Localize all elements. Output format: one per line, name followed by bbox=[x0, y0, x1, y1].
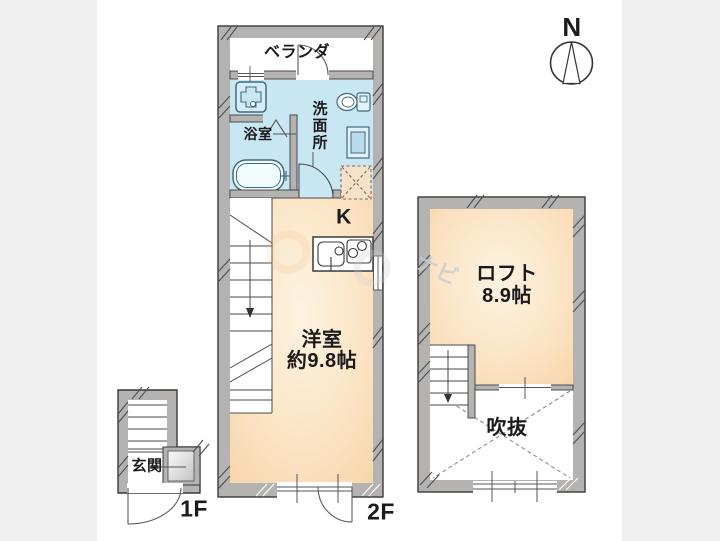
entrance-label: 玄関 bbox=[131, 459, 162, 474]
floor-2f-label: 2F bbox=[367, 501, 395, 524]
kitchen-label: K bbox=[336, 207, 352, 228]
staircase-1f bbox=[230, 198, 272, 413]
floorplan-graphics bbox=[0, 0, 720, 541]
bathtub-icon bbox=[233, 160, 290, 191]
entrance-door-arc bbox=[127, 483, 183, 524]
vanity-sink-icon bbox=[347, 127, 369, 158]
void-label: 吹抜 bbox=[487, 418, 528, 438]
staircase-loft bbox=[430, 345, 472, 405]
washroom-label: 洗面所 bbox=[312, 101, 327, 152]
room-name-label: 洋室 bbox=[302, 330, 343, 350]
washing-machine-icon bbox=[236, 82, 266, 112]
loft-size-label: 8.9帖 bbox=[482, 286, 532, 306]
left-gray-band bbox=[0, 0, 97, 541]
bathroom-label: 浴室 bbox=[244, 127, 273, 141]
north-label: N bbox=[562, 14, 581, 40]
compass-icon bbox=[551, 42, 593, 84]
loft-name-label: ロフト bbox=[476, 264, 538, 284]
toilet-icon bbox=[337, 93, 370, 111]
floor-1f-label: 1F bbox=[180, 498, 208, 521]
right-gray-band bbox=[622, 0, 720, 541]
room-size-label: 約9.8帖 bbox=[287, 351, 357, 371]
floorplan-image: ベランダ 浴室 洗面所 K 洋室 約9.8帖 玄関 1F 2F ロフト 8.9帖… bbox=[0, 0, 720, 541]
loft-stair-wall-stub bbox=[468, 345, 475, 418]
refrigerator-space bbox=[341, 166, 371, 199]
veranda-label: ベランダ bbox=[264, 45, 330, 61]
